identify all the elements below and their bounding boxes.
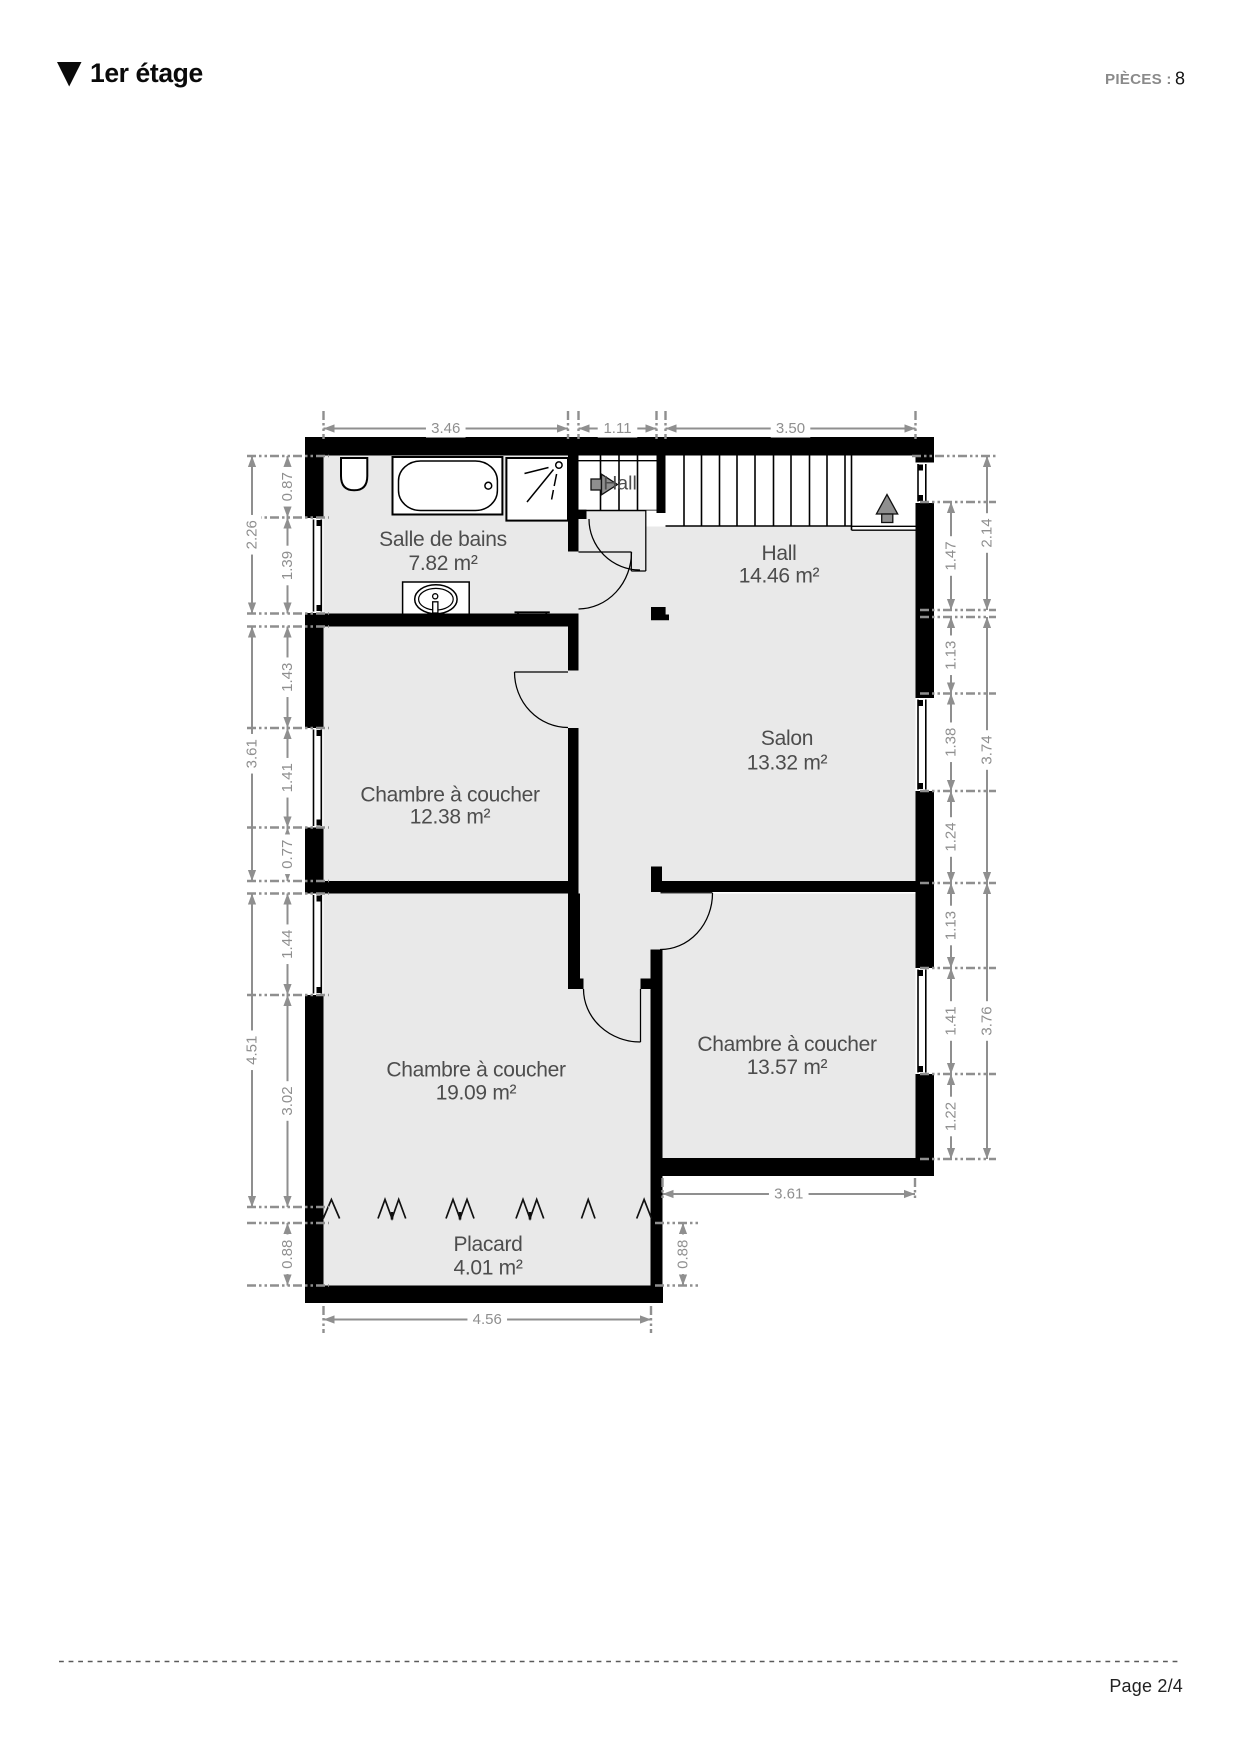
svg-text:13.32 m²: 13.32 m² — [747, 751, 828, 774]
svg-text:Chambre à coucher: Chambre à coucher — [697, 1033, 877, 1056]
svg-text:13.57 m²: 13.57 m² — [747, 1056, 828, 1079]
svg-text:Hall: Hall — [762, 542, 797, 565]
svg-text:Salon: Salon — [761, 727, 813, 750]
svg-text:1.41: 1.41 — [279, 763, 296, 792]
svg-text:3.76: 3.76 — [979, 1006, 996, 1035]
svg-text:12.38 m²: 12.38 m² — [410, 805, 491, 828]
svg-text:14.46 m²: 14.46 m² — [739, 564, 820, 587]
svg-text:1.13: 1.13 — [943, 641, 960, 670]
svg-text:0.88: 0.88 — [279, 1240, 296, 1269]
svg-text:2.14: 2.14 — [979, 518, 996, 547]
svg-text:PIÈCES :: PIÈCES : — [1105, 71, 1172, 88]
svg-text:3.61: 3.61 — [774, 1186, 803, 1203]
svg-text:1.43: 1.43 — [279, 663, 296, 692]
svg-text:1er étage: 1er étage — [90, 58, 203, 88]
svg-text:1.44: 1.44 — [279, 930, 296, 959]
svg-text:19.09 m²: 19.09 m² — [436, 1081, 517, 1104]
svg-text:1.13: 1.13 — [943, 911, 960, 940]
svg-text:Placard: Placard — [453, 1233, 522, 1256]
svg-text:3.46: 3.46 — [431, 420, 460, 437]
svg-text:Chambre à coucher: Chambre à coucher — [360, 783, 540, 806]
svg-text:1.38: 1.38 — [943, 728, 960, 757]
svg-text:3.50: 3.50 — [776, 420, 805, 437]
svg-text:4.56: 4.56 — [473, 1311, 502, 1328]
svg-text:4.01 m²: 4.01 m² — [453, 1256, 522, 1279]
svg-text:4.51: 4.51 — [244, 1036, 261, 1065]
svg-text:1.41: 1.41 — [943, 1006, 960, 1035]
svg-text:1.11: 1.11 — [603, 420, 631, 437]
svg-text:Chambre à coucher: Chambre à coucher — [386, 1058, 566, 1081]
svg-text:0.77: 0.77 — [279, 840, 296, 869]
svg-text:8: 8 — [1175, 69, 1185, 89]
svg-text:2.26: 2.26 — [244, 520, 261, 549]
svg-text:3.02: 3.02 — [279, 1086, 296, 1115]
svg-text:0.87: 0.87 — [279, 472, 296, 501]
svg-text:1.39: 1.39 — [279, 551, 296, 580]
svg-text:1.24: 1.24 — [943, 822, 960, 851]
svg-text:Hall: Hall — [603, 472, 637, 494]
svg-text:7.82 m²: 7.82 m² — [408, 552, 477, 575]
svg-text:1.22: 1.22 — [943, 1102, 960, 1131]
svg-text:3.61: 3.61 — [244, 739, 261, 768]
svg-text:3.74: 3.74 — [979, 735, 996, 764]
svg-text:Page 2/4: Page 2/4 — [1109, 1676, 1183, 1696]
svg-text:0.88: 0.88 — [675, 1240, 692, 1269]
svg-text:1.47: 1.47 — [943, 541, 960, 570]
svg-text:Salle de bains: Salle de bains — [379, 528, 507, 551]
